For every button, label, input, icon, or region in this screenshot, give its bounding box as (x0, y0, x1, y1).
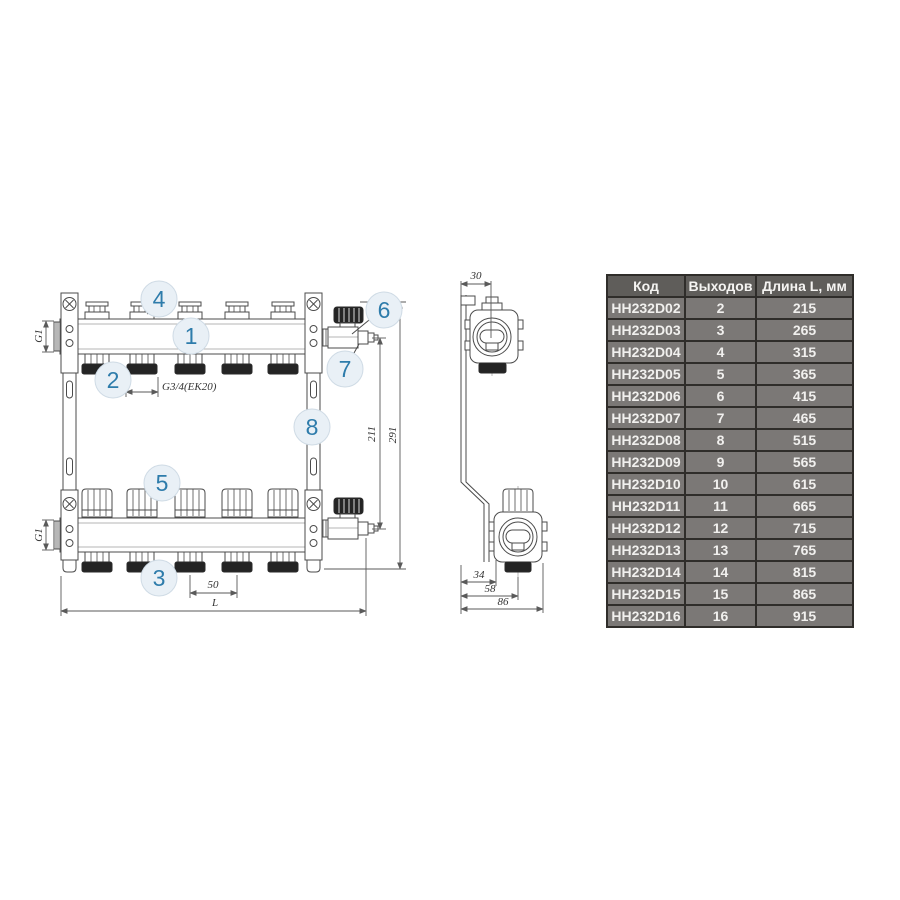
table-row: HH232D1313765 (607, 539, 853, 561)
cell-code: HH232D15 (607, 583, 685, 605)
cell-outputs: 15 (685, 583, 756, 605)
dim-thread-label: G3/4(EK20) (162, 381, 217, 393)
dim-length-label: L (211, 597, 218, 609)
cell-length: 265 (756, 319, 853, 341)
svg-text:1: 1 (185, 323, 198, 349)
cell-length: 565 (756, 451, 853, 473)
air-vent-caps (85, 302, 295, 319)
spec-table-header-row: Код Выходов Длина L, мм (607, 275, 853, 297)
cell-code: HH232D03 (607, 319, 685, 341)
table-row: HH232D066415 (607, 385, 853, 407)
table-row: HH232D1616915 (607, 605, 853, 627)
dim-total-height-label: 291 (387, 427, 399, 444)
return-outlets (82, 552, 298, 572)
callout-3: 3 (141, 560, 177, 596)
cell-length: 915 (756, 605, 853, 627)
cell-length: 365 (756, 363, 853, 385)
cell-length: 665 (756, 495, 853, 517)
table-row: HH232D088515 (607, 429, 853, 451)
table-row: HH232D044315 (607, 341, 853, 363)
cell-outputs: 16 (685, 605, 756, 627)
cell-length: 315 (756, 341, 853, 363)
dim-depth-label: 30 (470, 270, 483, 282)
cell-outputs: 10 (685, 473, 756, 495)
cell-length: 715 (756, 517, 853, 539)
dim-g1-top: G1 (33, 321, 54, 352)
dim-g1-top-label: G1 (33, 329, 45, 342)
svg-text:8: 8 (306, 414, 319, 440)
cell-code: HH232D14 (607, 561, 685, 583)
cell-length: 215 (756, 297, 853, 319)
dim-86-label: 86 (498, 596, 510, 608)
table-row: HH232D1515865 (607, 583, 853, 605)
table-row: HH232D1414815 (607, 561, 853, 583)
cell-length: 615 (756, 473, 853, 495)
cell-code: HH232D13 (607, 539, 685, 561)
table-row: HH232D1010615 (607, 473, 853, 495)
cell-length: 815 (756, 561, 853, 583)
header-length: Длина L, мм (756, 275, 853, 297)
side-return-section (489, 486, 547, 577)
svg-text:3: 3 (153, 565, 166, 591)
cell-outputs: 8 (685, 429, 756, 451)
dim-valve-height-label: 211 (366, 426, 378, 442)
table-row: HH232D1212715 (607, 517, 853, 539)
flow-knobs (82, 489, 298, 517)
cell-code: HH232D02 (607, 297, 685, 319)
cell-code: HH232D09 (607, 451, 685, 473)
cell-outputs: 14 (685, 561, 756, 583)
cell-length: 765 (756, 539, 853, 561)
svg-text:5: 5 (156, 470, 169, 496)
callout-5: 5 (144, 465, 180, 501)
header-outputs: Выходов (685, 275, 756, 297)
cell-outputs: 11 (685, 495, 756, 517)
dim-valve-height: 211 (366, 338, 386, 529)
dim-34-label: 34 (473, 569, 486, 581)
callout-1: 1 (173, 318, 209, 354)
cell-outputs: 5 (685, 363, 756, 385)
cell-outputs: 7 (685, 407, 756, 429)
table-row: HH232D077465 (607, 407, 853, 429)
cell-code: HH232D07 (607, 407, 685, 429)
dim-g1-bottom: G1 (33, 520, 54, 550)
dim-spacing: 50 (190, 575, 237, 598)
cell-code: HH232D05 (607, 363, 685, 385)
callout-8: 8 (294, 409, 330, 445)
cell-code: HH232D08 (607, 429, 685, 451)
cell-code: HH232D11 (607, 495, 685, 517)
table-row: HH232D033265 (607, 319, 853, 341)
cell-outputs: 12 (685, 517, 756, 539)
callout-4: 4 (141, 281, 177, 317)
cell-code: HH232D04 (607, 341, 685, 363)
table-row: HH232D1111665 (607, 495, 853, 517)
cell-length: 415 (756, 385, 853, 407)
callout-7: 7 (327, 344, 363, 387)
dim-58: 58 (461, 577, 518, 600)
dim-thread: G3/4(EK20) (126, 377, 217, 397)
cell-outputs: 6 (685, 385, 756, 407)
header-code: Код (607, 275, 685, 297)
cell-length: 515 (756, 429, 853, 451)
dim-g1-bottom-label: G1 (33, 528, 45, 541)
dim-58-label: 58 (485, 583, 497, 595)
end-valve-bottom (320, 498, 378, 539)
svg-text:2: 2 (107, 367, 120, 393)
product-image: G1 G1 G3/4(EK20) 50 L (0, 0, 900, 900)
dim-spacing-label: 50 (208, 579, 220, 591)
cell-outputs: 9 (685, 451, 756, 473)
cell-outputs: 2 (685, 297, 756, 319)
cell-code: HH232D10 (607, 473, 685, 495)
cell-outputs: 3 (685, 319, 756, 341)
callout-2: 2 (95, 362, 131, 398)
side-supply-section (465, 297, 523, 376)
cell-code: HH232D12 (607, 517, 685, 539)
left-bracket (61, 293, 78, 572)
cell-length: 865 (756, 583, 853, 605)
svg-text:6: 6 (378, 297, 391, 323)
cell-outputs: 13 (685, 539, 756, 561)
return-manifold-bar (54, 518, 322, 552)
cell-code: HH232D06 (607, 385, 685, 407)
cell-length: 465 (756, 407, 853, 429)
spec-table: Код Выходов Длина L, мм HH232D022215 HH2… (606, 274, 854, 628)
table-row: HH232D099565 (607, 451, 853, 473)
table-row: HH232D022215 (607, 297, 853, 319)
cell-outputs: 4 (685, 341, 756, 363)
svg-text:7: 7 (339, 356, 352, 382)
cell-code: HH232D16 (607, 605, 685, 627)
table-row: HH232D055365 (607, 363, 853, 385)
side-view (461, 295, 547, 577)
svg-text:4: 4 (153, 286, 166, 312)
